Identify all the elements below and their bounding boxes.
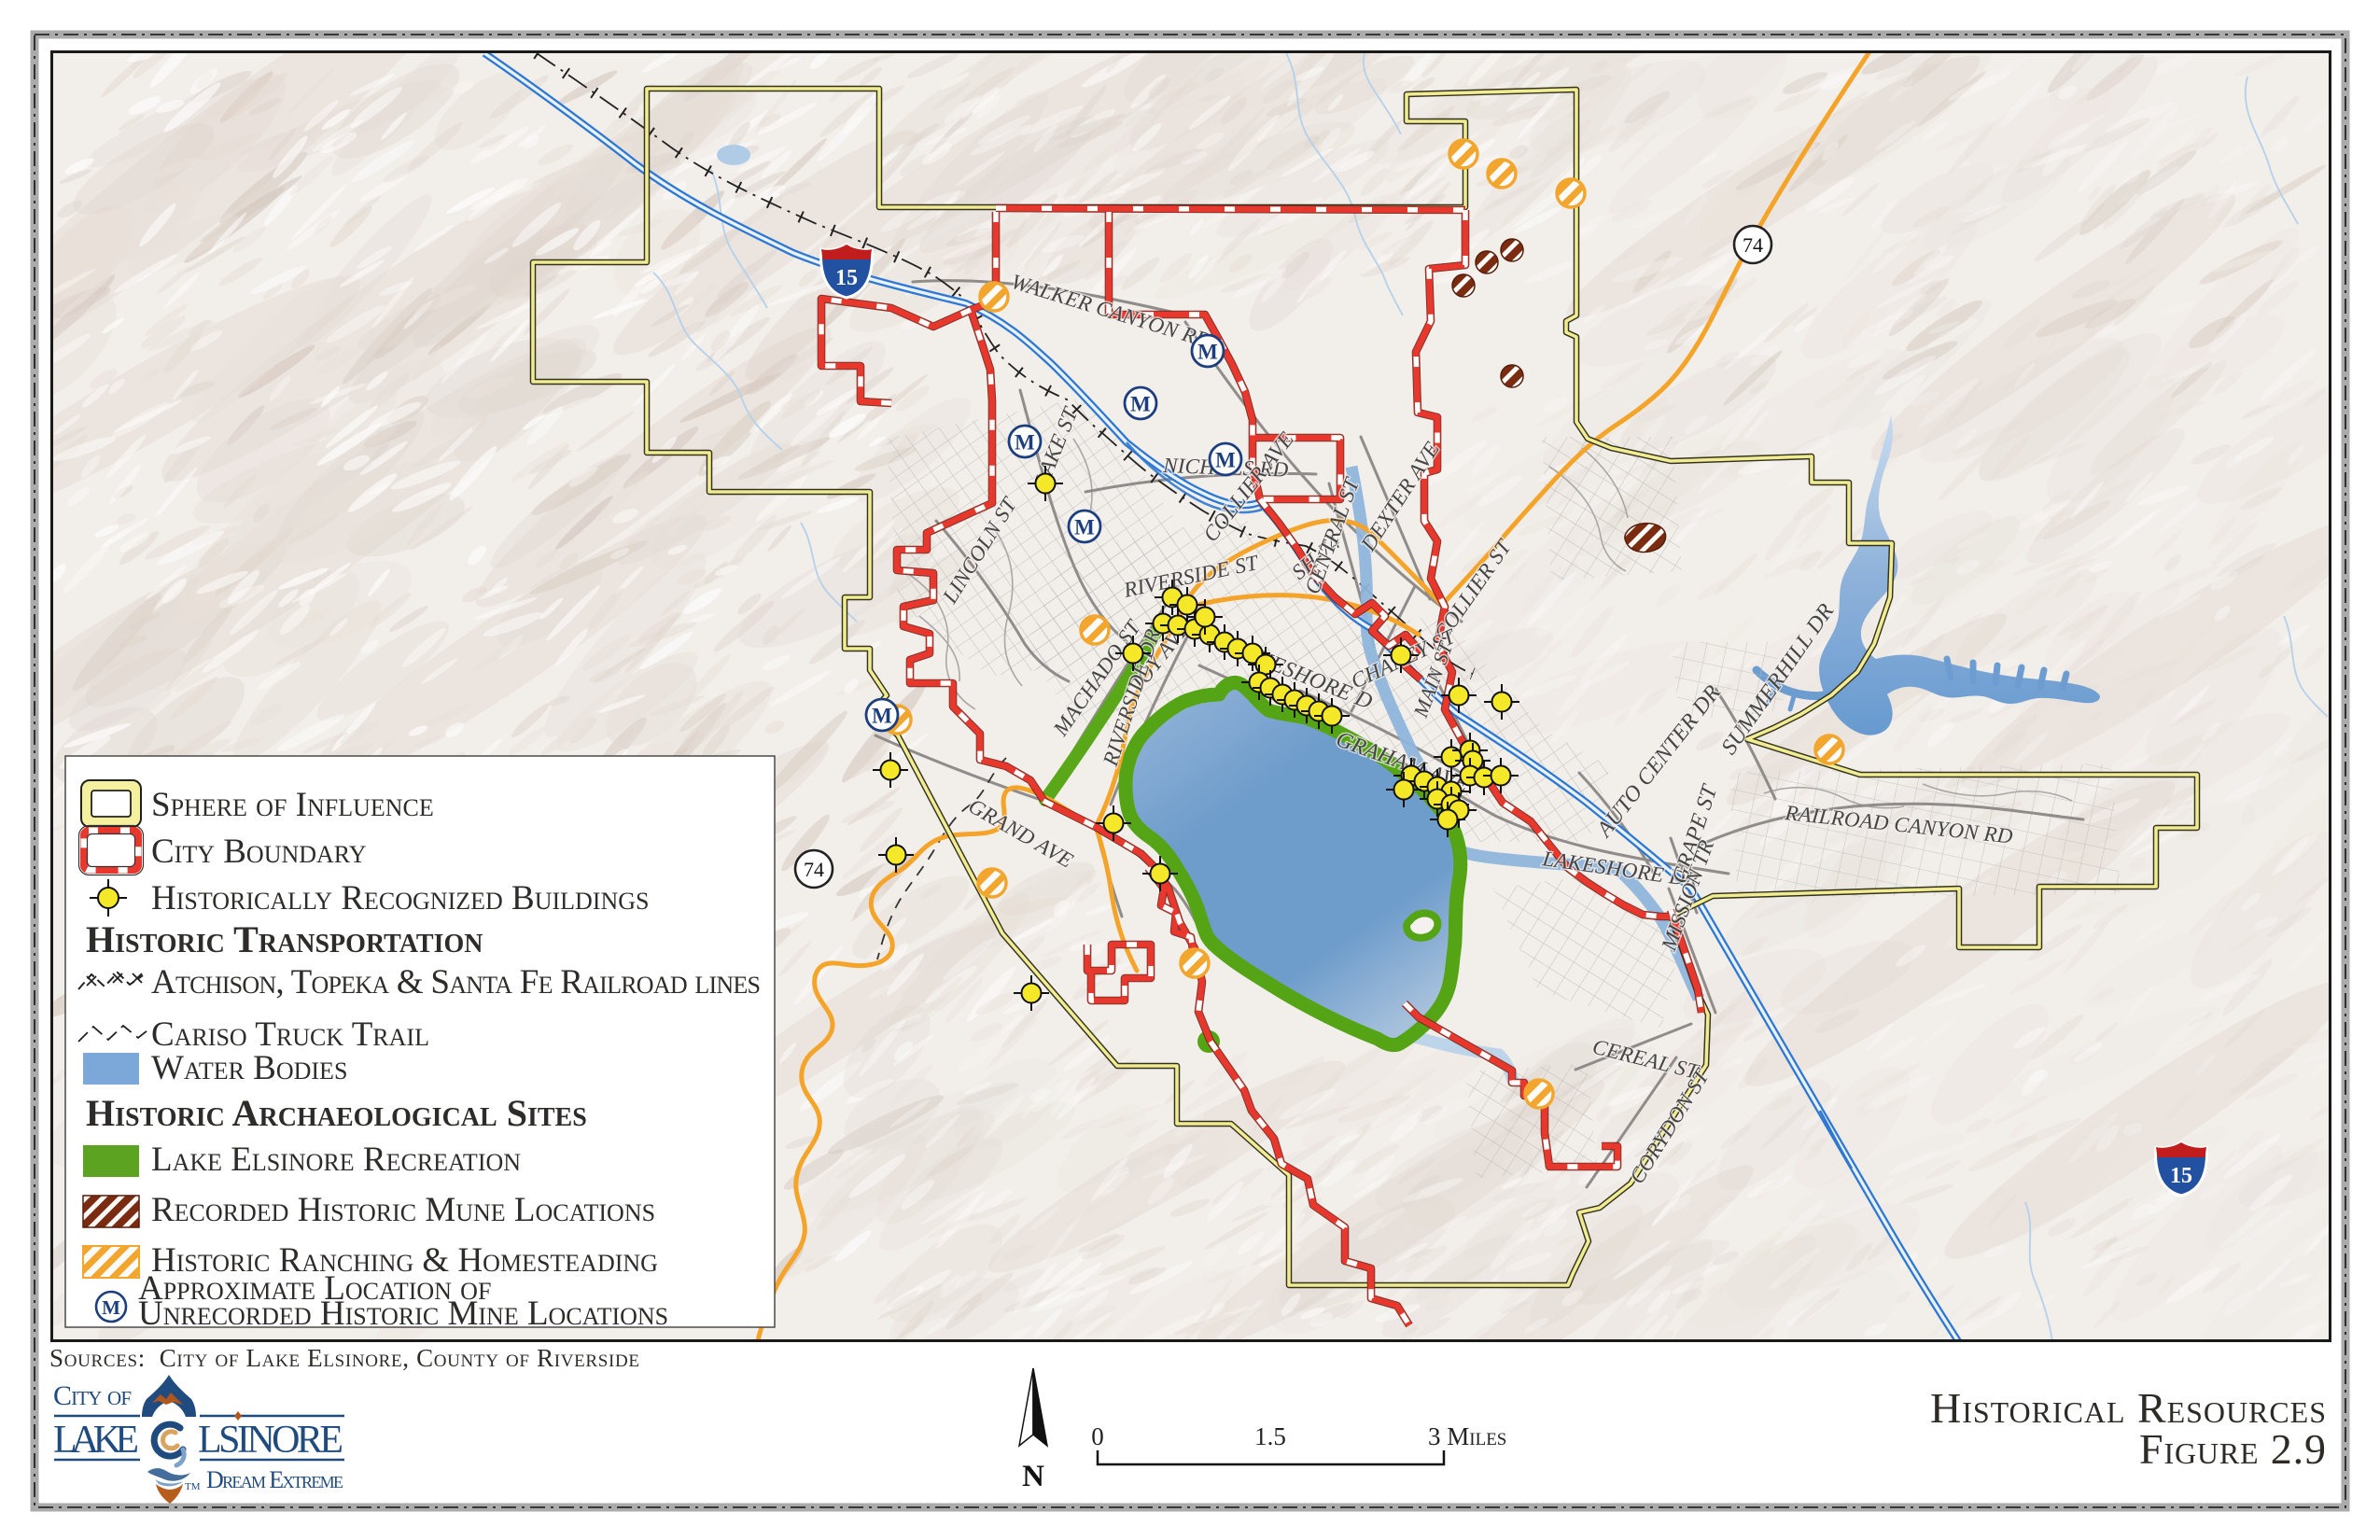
svg-text:M: M bbox=[872, 705, 892, 728]
svg-text:Dream Extreme: Dream Extreme bbox=[206, 1466, 346, 1493]
svg-text:Figure 2.9: Figure 2.9 bbox=[2139, 1425, 2326, 1473]
svg-text:Lake Elsinore Recreation: Lake Elsinore Recreation bbox=[151, 1141, 521, 1179]
svg-text:0: 0 bbox=[1091, 1422, 1104, 1450]
svg-text:City of: City of bbox=[53, 1380, 133, 1411]
svg-text:15: 15 bbox=[2170, 1164, 2192, 1188]
svg-text:74: 74 bbox=[1743, 233, 1763, 257]
svg-text:LSINORE: LSINORE bbox=[198, 1419, 344, 1462]
svg-text:LAKE: LAKE bbox=[53, 1419, 140, 1462]
svg-text:Sources: City of Lake Elsinor: Sources: City of Lake Elsinore, County o… bbox=[49, 1344, 639, 1372]
svg-text:Water Bodies: Water Bodies bbox=[151, 1049, 347, 1087]
svg-text:M: M bbox=[102, 1296, 120, 1319]
svg-text:Historic Archaeological Sites: Historic Archaeological Sites bbox=[86, 1092, 587, 1134]
svg-text:Sphere of Influence: Sphere of Influence bbox=[151, 786, 434, 824]
svg-text:M: M bbox=[1197, 341, 1218, 364]
svg-text:Historic Transportation: Historic Transportation bbox=[86, 918, 483, 960]
svg-text:Atchison, Topeka & Santa Fe Ra: Atchison, Topeka & Santa Fe Railroad lin… bbox=[151, 963, 761, 1001]
svg-text:M: M bbox=[1130, 393, 1151, 416]
svg-text:15: 15 bbox=[835, 266, 858, 290]
svg-text:TM: TM bbox=[185, 1481, 201, 1492]
svg-text:M: M bbox=[1015, 431, 1035, 455]
svg-text:City Boundary: City Boundary bbox=[151, 833, 367, 871]
svg-text:N: N bbox=[1022, 1460, 1044, 1493]
svg-text:Unrecorded Historic Mine Locat: Unrecorded Historic Mine Locations bbox=[138, 1295, 668, 1333]
svg-text:Cariso Truck Trail: Cariso Truck Trail bbox=[151, 1015, 429, 1054]
svg-text:1.5: 1.5 bbox=[1254, 1422, 1286, 1450]
svg-text:M: M bbox=[1215, 449, 1236, 472]
svg-text:3 Miles: 3 Miles bbox=[1428, 1422, 1506, 1450]
svg-text:Recorded Historic Mune Locatio: Recorded Historic Mune Locations bbox=[151, 1191, 655, 1229]
svg-text:74: 74 bbox=[804, 858, 824, 881]
svg-text:M: M bbox=[1074, 516, 1095, 539]
svg-text:Historically Recognized Buildi: Historically Recognized Buildings bbox=[151, 879, 649, 917]
